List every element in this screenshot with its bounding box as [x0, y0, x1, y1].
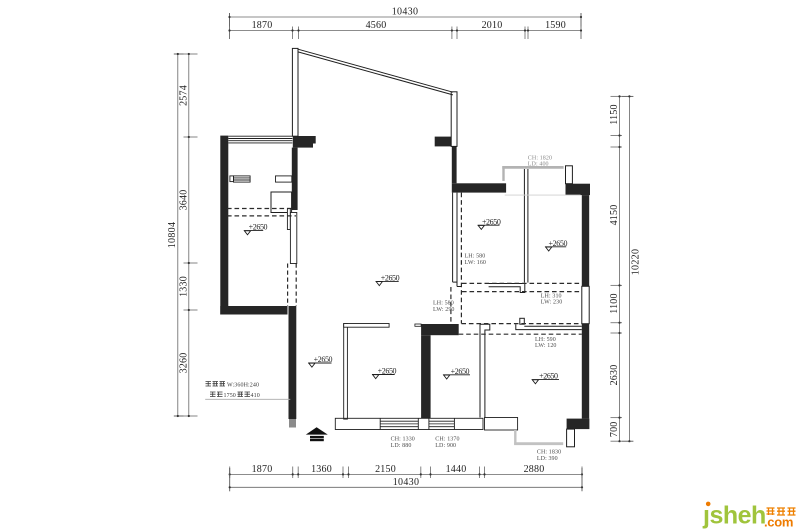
svg-text:LW: 290: LW: 290 — [433, 307, 455, 313]
svg-text:1100: 1100 — [609, 293, 620, 313]
svg-text:3640: 3640 — [179, 190, 190, 211]
svg-text:4150: 4150 — [609, 205, 620, 226]
svg-text:10220: 10220 — [631, 249, 642, 276]
svg-text:10430: 10430 — [392, 7, 419, 18]
svg-text:2150: 2150 — [375, 464, 396, 475]
svg-text:1750: 1750 — [224, 393, 236, 399]
svg-text:LW: 160: LW: 160 — [465, 260, 487, 266]
svg-text:1150: 1150 — [609, 104, 620, 124]
svg-text:2630: 2630 — [609, 365, 620, 386]
svg-text:LD: 400: LD: 400 — [528, 161, 549, 167]
svg-text:2574: 2574 — [179, 85, 190, 106]
svg-text:1360: 1360 — [311, 464, 332, 475]
svg-text:10430: 10430 — [393, 477, 420, 488]
svg-text:1440: 1440 — [446, 464, 467, 475]
svg-text:LW: 230: LW: 230 — [541, 299, 563, 305]
svg-text:W:360H:240: W:360H:240 — [227, 383, 259, 389]
svg-text:LW: 120: LW: 120 — [535, 343, 557, 349]
svg-text:LD: 390: LD: 390 — [537, 456, 558, 462]
svg-text:1590: 1590 — [545, 20, 566, 31]
svg-text:jsheh: jsheh — [702, 502, 766, 530]
svg-text:LH: 580: LH: 580 — [465, 253, 486, 259]
svg-text:2010: 2010 — [482, 20, 503, 31]
svg-text:1330: 1330 — [179, 276, 190, 297]
svg-text:410: 410 — [251, 393, 260, 399]
svg-text:CH: 1830: CH: 1830 — [537, 449, 561, 455]
svg-text:2880: 2880 — [524, 464, 545, 475]
svg-text:10804: 10804 — [167, 222, 178, 249]
svg-text:700: 700 — [609, 421, 620, 437]
svg-text:1870: 1870 — [252, 464, 273, 475]
svg-text:.com: .com — [764, 515, 793, 530]
svg-text:LH: 580: LH: 580 — [433, 301, 454, 307]
svg-text:LD: 880: LD: 880 — [391, 443, 412, 449]
svg-text:LD: 900: LD: 900 — [435, 443, 456, 449]
svg-text:CH: 1330: CH: 1330 — [391, 437, 415, 443]
svg-text:3260: 3260 — [179, 353, 190, 374]
svg-text:CH: 1370: CH: 1370 — [435, 437, 459, 443]
svg-text:4560: 4560 — [366, 20, 387, 31]
svg-text:1870: 1870 — [252, 20, 273, 31]
